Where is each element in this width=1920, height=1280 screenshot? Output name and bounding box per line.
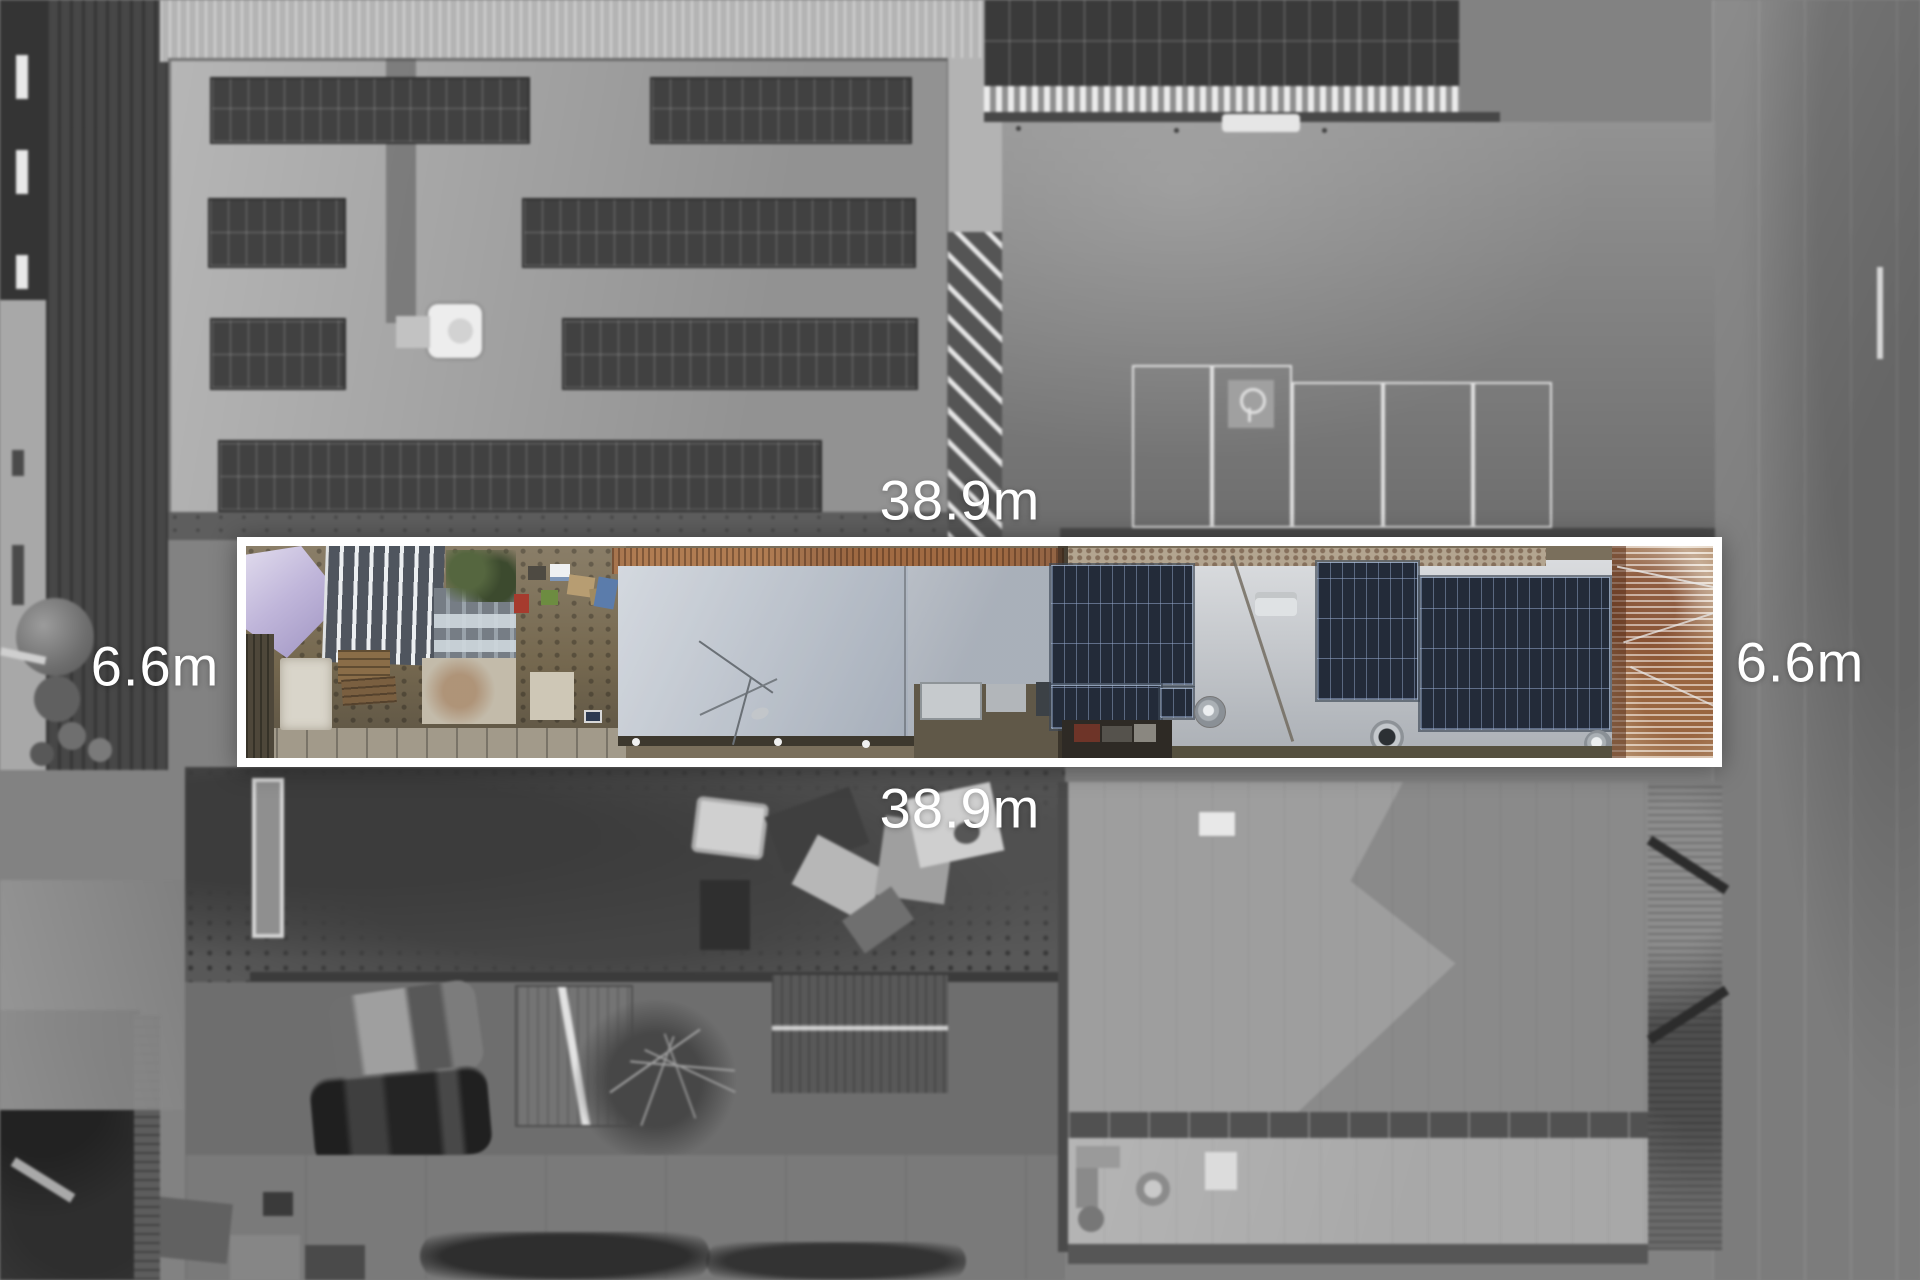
striped-eave xyxy=(984,86,1460,112)
parking-bay-line xyxy=(1383,382,1473,528)
left-window-slit xyxy=(16,55,28,99)
left-light-path xyxy=(0,880,185,1110)
warehouse-edge xyxy=(1058,782,1068,1252)
left-window-slit xyxy=(16,150,28,194)
dark-crate xyxy=(700,880,750,950)
aerial-property-photo: 38.9m 38.9m 6.6m 6.6m xyxy=(0,0,1920,1280)
left-window-slit xyxy=(16,255,28,289)
bare-tree xyxy=(540,980,760,1180)
water-tank xyxy=(16,598,94,676)
clutter-box xyxy=(230,1235,300,1280)
solar-array xyxy=(210,77,530,144)
trailer xyxy=(691,796,769,860)
parking-bay-line xyxy=(1132,365,1212,528)
warehouse-roof-upper xyxy=(1068,782,1648,1112)
dimension-label-left: 6.6m xyxy=(91,634,220,699)
pavement-dot xyxy=(1016,126,1021,131)
left-wall-slot xyxy=(12,545,24,605)
road-lane-dash xyxy=(1877,267,1883,359)
warehouse-bottom-band xyxy=(1068,1244,1648,1264)
dark-square-object xyxy=(263,1192,293,1216)
solar-array xyxy=(208,198,346,268)
roof-white-box xyxy=(1205,1152,1237,1190)
solar-array xyxy=(562,318,918,390)
clutter-box xyxy=(305,1245,365,1280)
barrel xyxy=(58,722,86,750)
dimension-label-bottom: 38.9m xyxy=(880,776,1041,841)
symbol-glyph-tail xyxy=(1248,408,1251,422)
hedge xyxy=(420,1232,710,1280)
accessible-bay-symbol xyxy=(1228,380,1274,428)
parked-car-black xyxy=(309,1064,494,1167)
pavement-dot xyxy=(1174,128,1179,133)
tree-shadow xyxy=(570,1000,740,1160)
solar-array xyxy=(210,318,346,390)
hedge xyxy=(706,1242,966,1280)
container-roof xyxy=(772,975,948,1093)
parking-bay-line xyxy=(1473,382,1552,528)
roof-duct xyxy=(1076,1146,1120,1168)
skylight xyxy=(1197,810,1237,838)
property-boundary xyxy=(237,537,1722,767)
rooftop-ac-unit xyxy=(428,304,482,358)
pavement-dot xyxy=(1322,128,1327,133)
symbol-glyph xyxy=(1240,388,1266,414)
roof-duct-cap xyxy=(1078,1206,1104,1232)
white-pavement-patch xyxy=(1222,114,1300,132)
factory-roof-eave xyxy=(168,512,950,540)
roof-duct-elbow xyxy=(1076,1168,1098,1208)
solar-array xyxy=(218,440,822,512)
factory-upper-band xyxy=(160,0,990,62)
solar-array xyxy=(522,198,916,268)
ac-attachment xyxy=(396,316,430,348)
white-fence-panel xyxy=(252,778,284,938)
neighbor-solar-array xyxy=(984,0,1460,89)
parking-bay-line xyxy=(1292,382,1383,528)
roof-shade xyxy=(1298,782,1648,1112)
roof-vent-circle xyxy=(1136,1172,1170,1206)
water-tank-small xyxy=(34,676,80,722)
barrel xyxy=(30,742,54,766)
warehouse-gutter xyxy=(1068,1112,1648,1138)
left-wall-slot xyxy=(12,450,24,476)
dimension-label-right: 6.6m xyxy=(1736,630,1865,695)
barrel xyxy=(88,738,112,762)
dimension-label-top: 38.9m xyxy=(880,468,1041,533)
solar-array xyxy=(650,77,912,144)
